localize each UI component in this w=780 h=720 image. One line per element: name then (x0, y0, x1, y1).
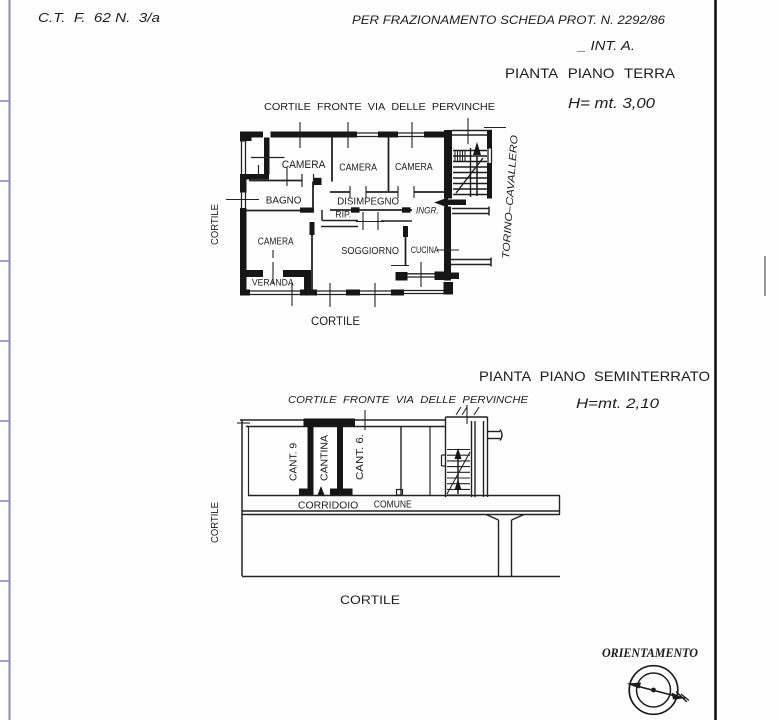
svg-text:CAMERA: CAMERA (282, 159, 326, 171)
svg-text:CANTINA: CANTINA (319, 435, 330, 481)
svg-text:SOGGIORNO: SOGGIORNO (341, 245, 399, 257)
svg-text:CORRIDOIO: CORRIDOIO (298, 500, 358, 512)
svg-text:H=mt. 2,10: H=mt. 2,10 (576, 395, 659, 411)
svg-text:PIANTA PIANO SEMINTERRATO: PIANTA PIANO SEMINTERRATO (479, 368, 710, 384)
svg-text:CORTILE: CORTILE (340, 593, 400, 607)
svg-text:PER FRAZIONAMENTO SCHEDA PROT.: PER FRAZIONAMENTO SCHEDA PROT. N. 2292/8… (352, 13, 665, 27)
svg-text:BAGNO: BAGNO (266, 195, 302, 207)
svg-text:H= mt. 3,00: H= mt. 3,00 (568, 96, 655, 112)
svg-text:ORIENTAMENTO: ORIENTAMENTO (602, 645, 699, 660)
svg-text:CAMERA: CAMERA (339, 162, 377, 174)
svg-text:CANT. 6.: CANT. 6. (355, 434, 366, 480)
svg-text:CORTILE FRONTE VIA DELLE PERVI: CORTILE FRONTE VIA DELLE PERVINCHE (264, 101, 495, 113)
svg-text:_ INT. A.: _ INT. A. (577, 39, 635, 53)
svg-text:RIP.: RIP. (335, 210, 351, 220)
svg-text:PIANTA PIANO TERRA: PIANTA PIANO TERRA (505, 65, 676, 81)
svg-text:CORTILE: CORTILE (209, 502, 221, 543)
svg-text:CAMERA: CAMERA (395, 161, 433, 173)
svg-text:CORTILE: CORTILE (311, 316, 360, 328)
svg-text:CAMERA: CAMERA (258, 237, 294, 248)
svg-text:COMUNE: COMUNE (374, 499, 412, 511)
svg-text:CORTILE: CORTILE (209, 204, 221, 245)
svg-text:C.T. F. 62 N. 3/a: C.T. F. 62 N. 3/a (38, 11, 160, 25)
svg-text:CUCINA: CUCINA (411, 245, 439, 256)
svg-text:INGR.: INGR. (416, 206, 439, 217)
svg-text:CANT. 9: CANT. 9 (289, 443, 300, 481)
svg-text:CORTILE FRONTE VIA DELLE PERVI: CORTILE FRONTE VIA DELLE PERVINCHE (288, 394, 529, 406)
svg-text:DISIMPEGNO: DISIMPEGNO (337, 197, 399, 208)
svg-text:VERANDA: VERANDA (252, 278, 294, 289)
